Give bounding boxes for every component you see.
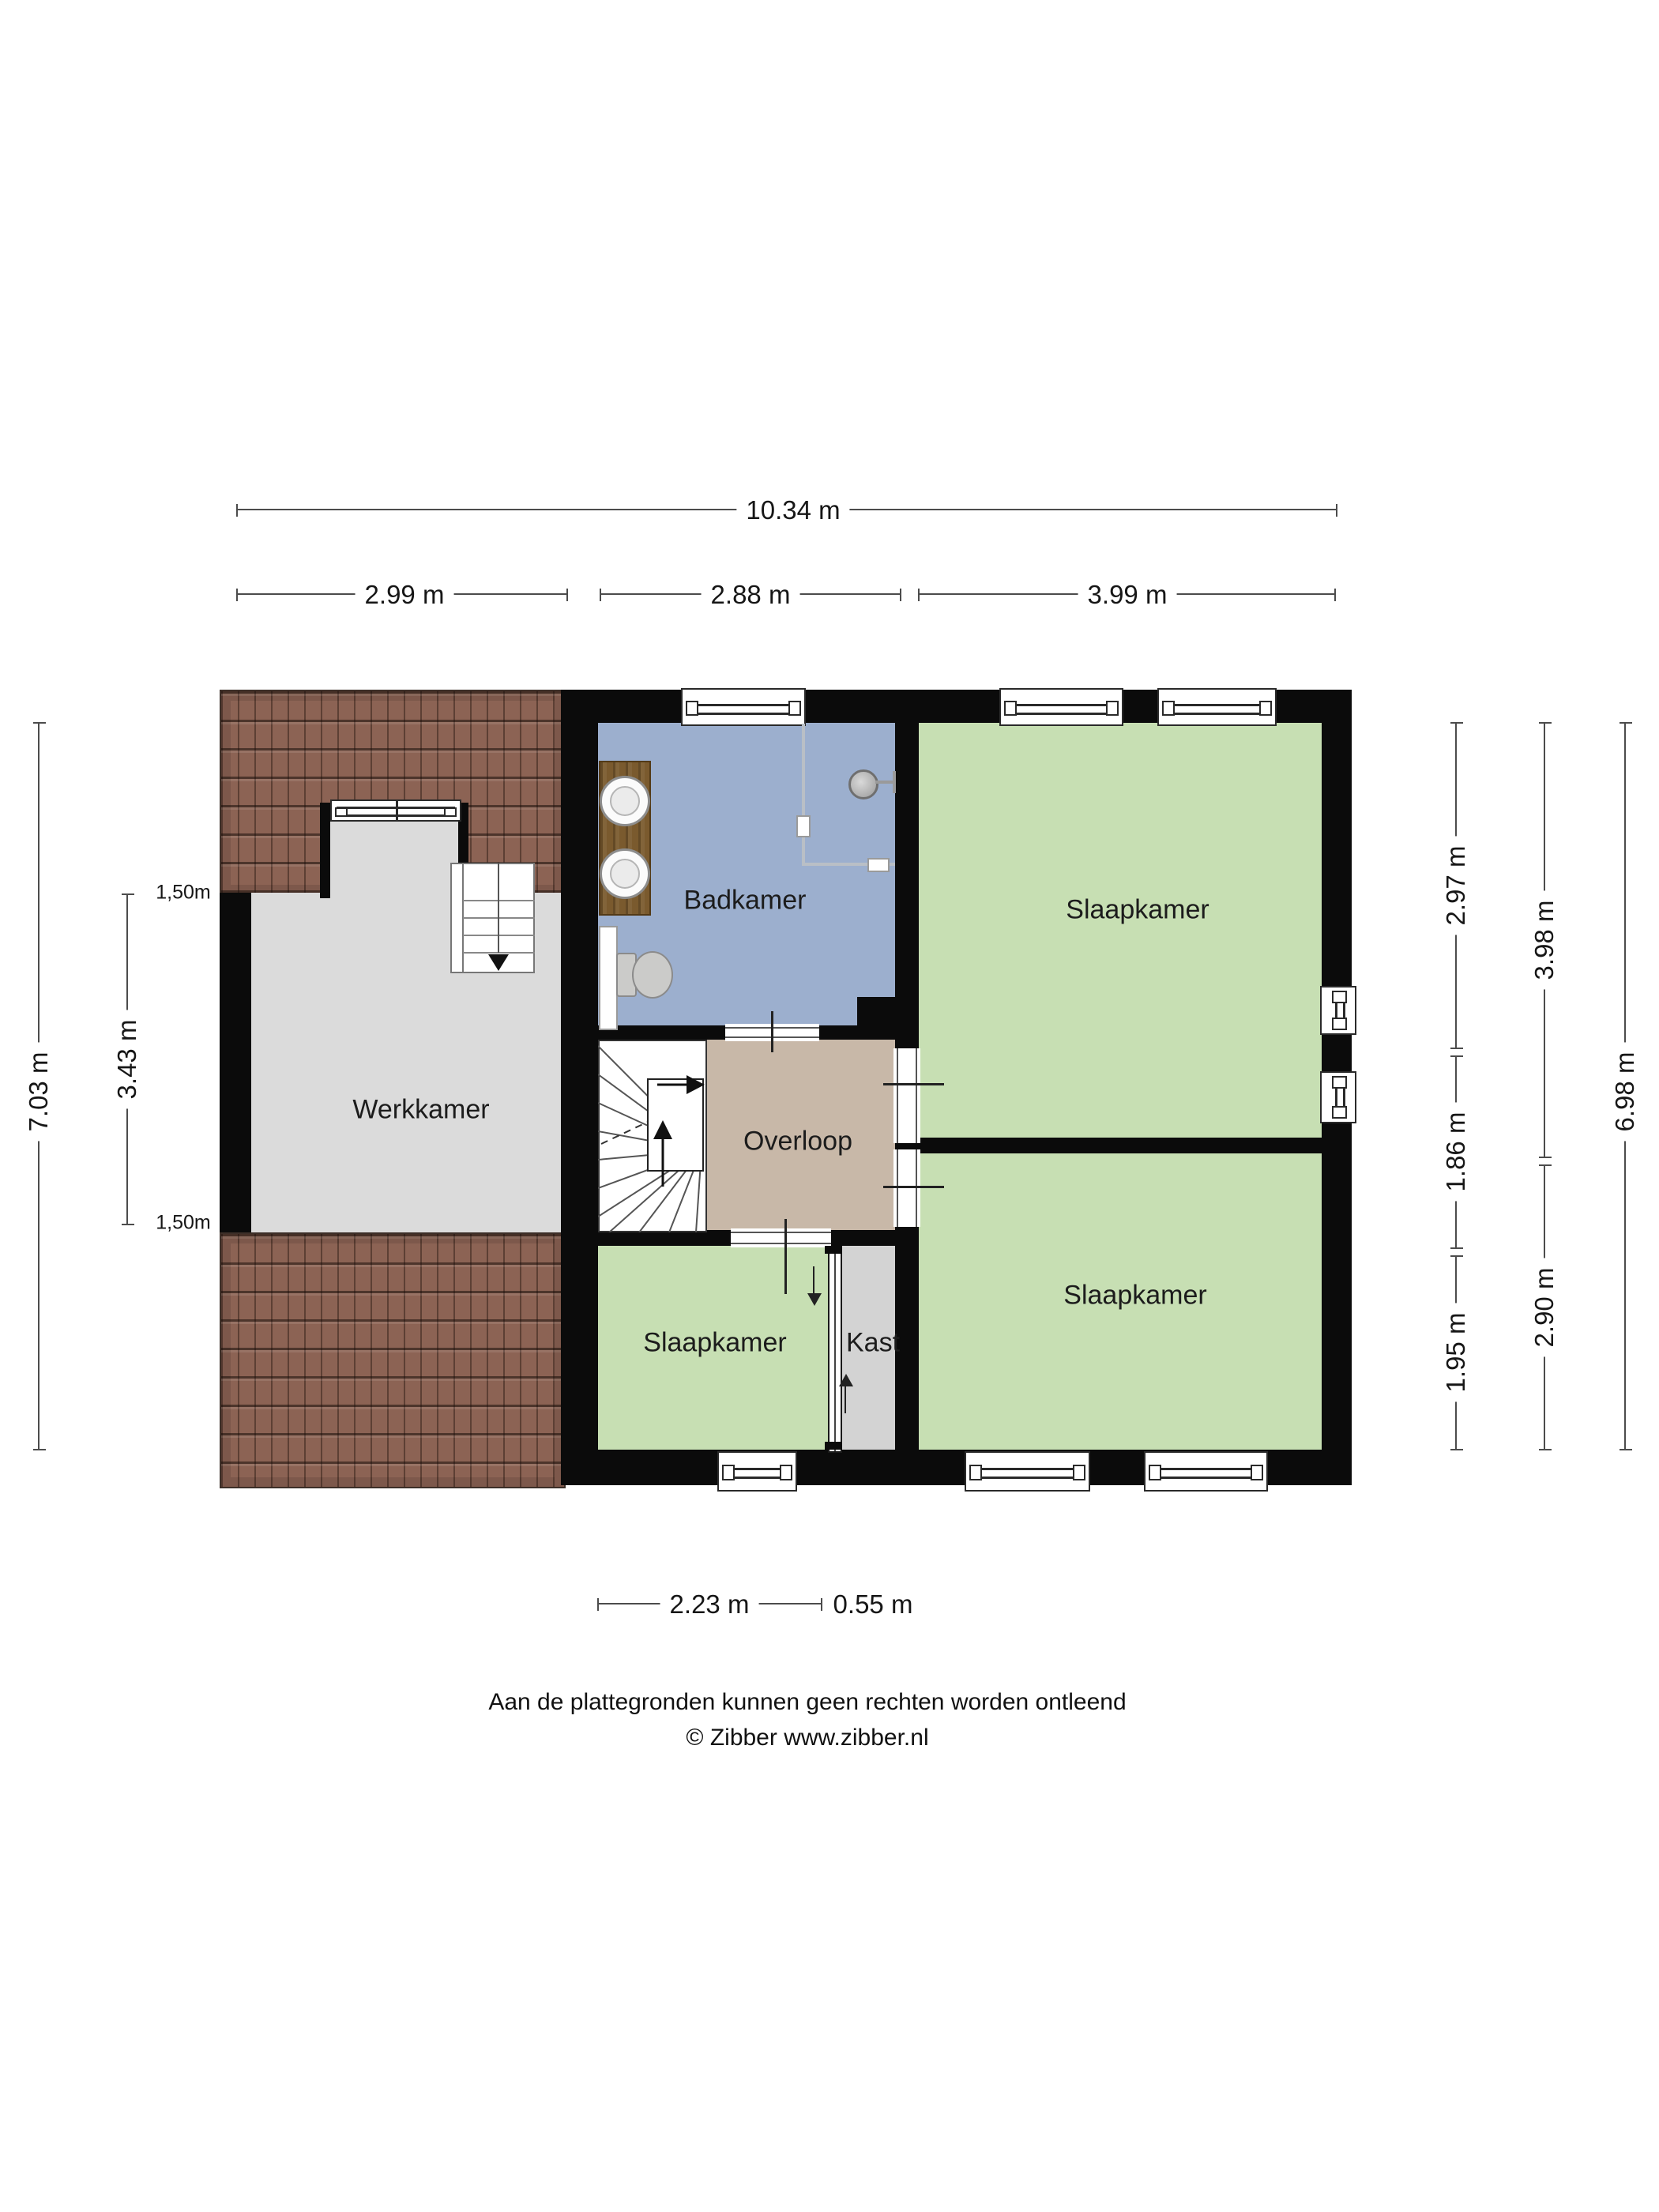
- badkamer-door-tick: [771, 1011, 773, 1052]
- footer-disclaimer: Aan de plattegronden kunnen geen rechten…: [488, 1689, 1126, 1716]
- slaapkamer-top-door-tick: [883, 1083, 944, 1085]
- werkkamer-label: Werkkamer: [352, 1095, 489, 1126]
- footer-copyright: © Zibber www.zibber.nl: [686, 1725, 928, 1751]
- dim-bottom-seg2-label: 0.55 m: [824, 1588, 923, 1621]
- dim-right-inner3-label: 1.95 m: [1439, 1303, 1473, 1402]
- wall-werkkamer-left: [220, 893, 251, 1232]
- sink-icon-1: [600, 776, 650, 826]
- wall-bedroom-divider: [910, 1138, 1322, 1153]
- slaapkamer-bottom-door-opening: [893, 1149, 920, 1227]
- werkkamer-alcove-window: [330, 799, 461, 822]
- wall-spine: [561, 690, 598, 1485]
- slaapkamer-bottom-label: Slaapkamer: [1063, 1281, 1206, 1311]
- slaapkamer-small-door-tick: [784, 1219, 787, 1294]
- kast-sliding-door-stub-top: [825, 1246, 842, 1254]
- slaapkamer-top-door-opening: [893, 1048, 920, 1143]
- dim-right-mid2-label: 2.90 m: [1528, 1258, 1561, 1357]
- slide-arrow-down-head: [807, 1293, 822, 1306]
- badkamer-label: Badkamer: [684, 886, 807, 916]
- slide-arrow-up-line: [845, 1386, 846, 1413]
- dim-top-total-label: 10.34 m: [736, 494, 849, 527]
- slaapkamer-bottom-door-tick: [883, 1186, 944, 1188]
- dim-left-total-label: 7.03 m: [22, 1043, 55, 1142]
- slaapkamer-top-window-right-1: [1320, 986, 1356, 1035]
- wall-alcove-left: [320, 803, 330, 898]
- dim-bottom-seg1-label: 2.23 m: [660, 1588, 759, 1621]
- slaapkamer-small-label: Slaapkamer: [643, 1328, 786, 1359]
- dim-top-seg1-label: 2.99 m: [355, 578, 454, 611]
- stairs-winder: [598, 1040, 707, 1232]
- slaapkamer-top-window-1: [999, 688, 1123, 726]
- kast-label: Kast: [846, 1328, 900, 1359]
- slaapkamer-top-floor: [919, 723, 1322, 1138]
- badkamer-window: [681, 688, 806, 726]
- shower-icon: [848, 769, 878, 799]
- slaapkamer-top-window-right-2: [1320, 1071, 1356, 1123]
- slaapkamer-small-window: [717, 1451, 797, 1492]
- sink-icon-2: [600, 848, 650, 899]
- shower-glass-vertical: [802, 724, 805, 864]
- slaapkamer-bottom-window-2: [1144, 1451, 1268, 1492]
- roof-height-bottom-label: 1,50m: [152, 1212, 213, 1235]
- slaapkamer-bottom-window-1: [965, 1451, 1090, 1492]
- roof-tiles-bottom: [220, 1232, 566, 1488]
- shower-arm: [875, 781, 894, 784]
- dim-top-seg3-label: 3.99 m: [1078, 578, 1177, 611]
- dim-right-total-label: 6.98 m: [1608, 1043, 1642, 1142]
- shower-door-handle-2: [867, 858, 890, 872]
- wall-badkamer-stub: [857, 997, 895, 1027]
- badkamer-door-leaf: [599, 926, 618, 1030]
- floor-plan-page: 10.34 m 2.99 m 2.88 m 3.99 m 7.03 m 3.43…: [0, 0, 1659, 2212]
- dim-right-inner2-label: 1.86 m: [1439, 1103, 1473, 1202]
- stairs-attic: [450, 863, 535, 973]
- overloop-label: Overloop: [743, 1127, 852, 1157]
- shower-arm-tee: [893, 771, 896, 793]
- dim-right-inner1-label: 2.97 m: [1439, 837, 1473, 935]
- dim-right-mid1-label: 3.98 m: [1528, 891, 1561, 990]
- kast-sliding-door: [828, 1246, 842, 1453]
- dim-left-middle-label: 3.43 m: [111, 1010, 144, 1109]
- werkkamer-alcove-floor: [330, 817, 458, 896]
- slaapkamer-small-door-opening: [731, 1228, 831, 1247]
- slide-arrow-down-line: [813, 1266, 814, 1293]
- toilet-icon: [632, 951, 673, 999]
- slaapkamer-top-window-2: [1157, 688, 1277, 726]
- slaapkamer-top-label: Slaapkamer: [1066, 895, 1209, 926]
- roof-height-top-label: 1,50m: [152, 882, 213, 905]
- shower-door-handle-1: [796, 815, 811, 837]
- dim-top-seg2-label: 2.88 m: [702, 578, 800, 611]
- slide-arrow-up-head: [839, 1374, 853, 1386]
- kast-sliding-door-stub-bottom: [825, 1442, 842, 1450]
